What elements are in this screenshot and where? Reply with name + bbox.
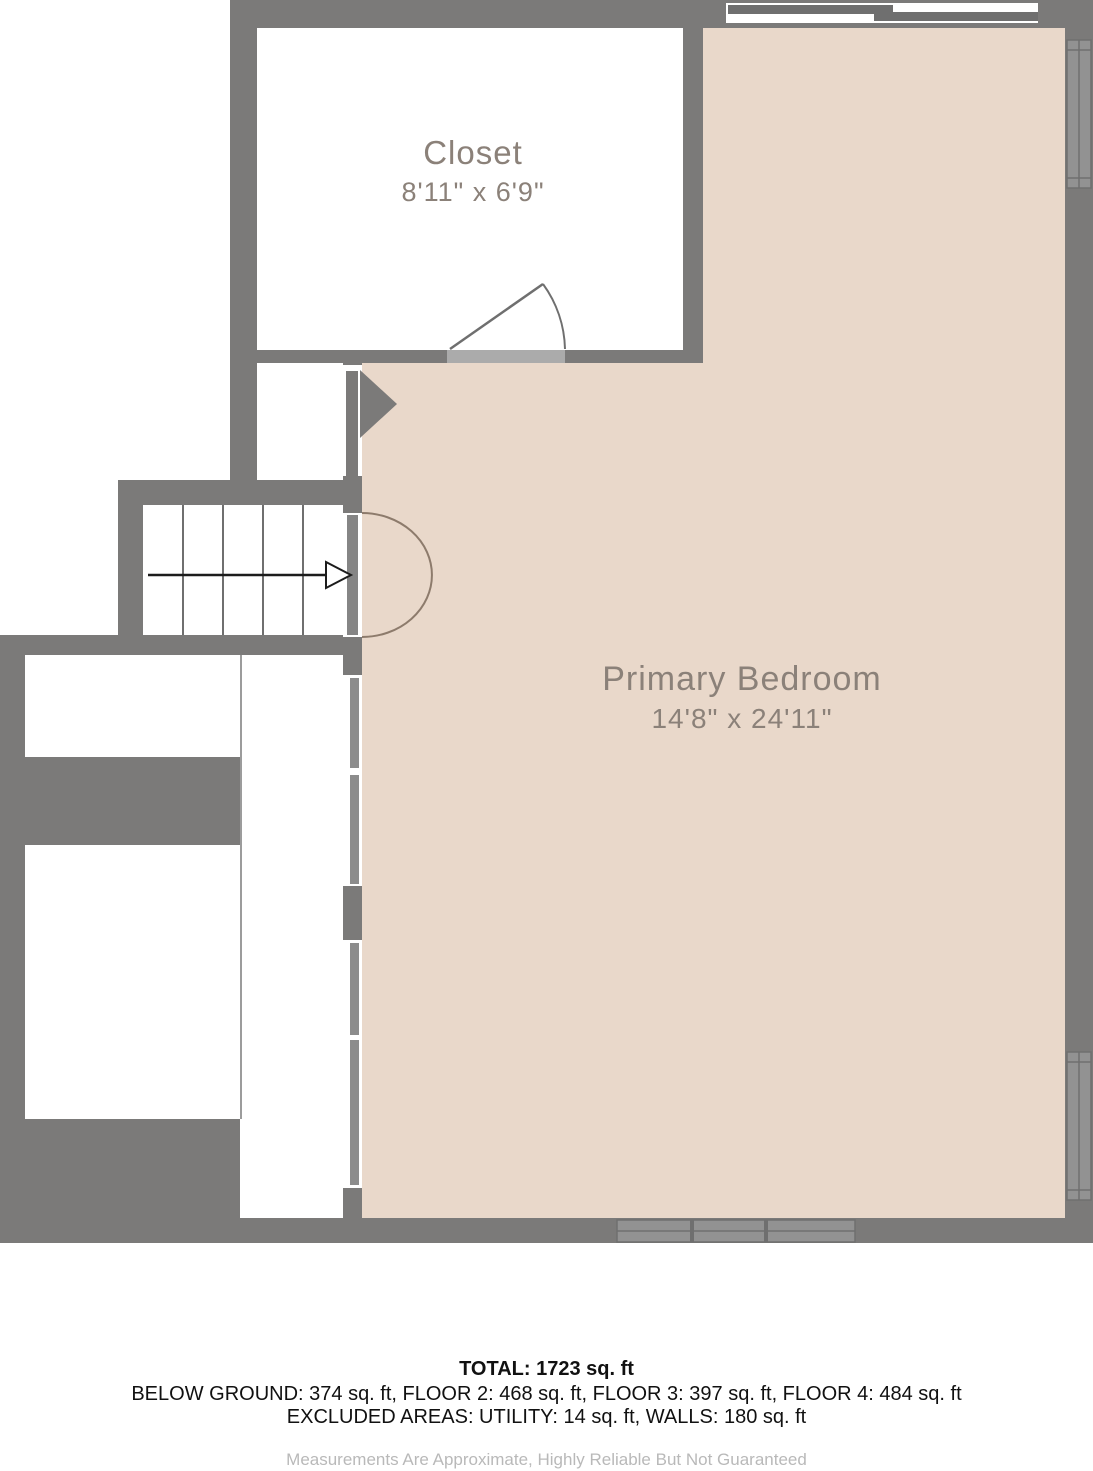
total-area-text: TOTAL: 1723 sq. ft [0, 1358, 1093, 1381]
vestibule-floor [257, 363, 343, 480]
interior-partition-line [240, 655, 242, 1119]
window-right-bottom-icon [1067, 1052, 1091, 1200]
wall-outer-left [0, 635, 25, 1243]
disclaimer-text: Measurements Are Approximate, Highly Rel… [0, 1448, 1093, 1471]
stairs-floor [143, 505, 343, 635]
closet-floor [257, 28, 683, 350]
wall-stairs-left [118, 480, 143, 655]
room-a-floor [25, 655, 240, 757]
floor-areas-text: BELOW GROUND: 374 sq. ft, FLOOR 2: 468 s… [0, 1383, 1093, 1406]
sliding-door-top [726, 3, 1038, 23]
wall-stairs-bottom [0, 635, 362, 655]
sliding-door-panel-2 [874, 12, 1038, 21]
glazing-bar-4 [350, 1040, 359, 1185]
wall-closet-right [683, 0, 703, 363]
corridor-floor [242, 655, 343, 1218]
wall-stairs-top [118, 480, 362, 505]
window-bottom-icon [617, 1220, 855, 1242]
floor-plan-svg [0, 0, 1093, 1243]
glazing-bar-1 [350, 678, 359, 768]
glazing-bar-2 [350, 775, 359, 884]
glazing-bar-3 [350, 943, 359, 1035]
wall-bottom [0, 1218, 1093, 1243]
floors [25, 28, 1065, 1218]
sliding-door-panel-1 [728, 5, 893, 14]
room-b-floor [25, 845, 240, 1119]
wall-closet-left [230, 0, 257, 480]
excluded-areas-text: EXCLUDED AREAS: UTILITY: 14 sq. ft, WALL… [0, 1406, 1093, 1429]
closet-door-threshold [447, 350, 565, 363]
vestibule-door-leaf [346, 371, 358, 476]
window-right-top-icon [1067, 40, 1091, 188]
floor-plan: Closet 8'11" x 6'9" Primary Bedroom 14'8… [0, 0, 1093, 1243]
